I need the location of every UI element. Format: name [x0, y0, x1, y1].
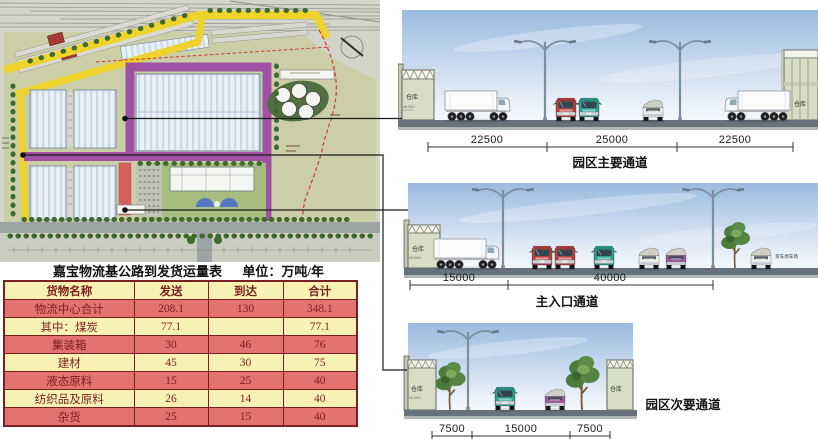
gate-tree [187, 236, 195, 244]
cargo-name-cell: 纺织品及原料 [4, 390, 134, 408]
section-caption: 园区次要通道 [645, 397, 721, 412]
column-header: 到达 [208, 281, 283, 300]
value-cell: 30 [134, 336, 208, 354]
dimension-value: 25000 [596, 134, 629, 146]
sky [408, 323, 633, 410]
value-cell: 25 [208, 372, 283, 390]
table-row: 物流中心合计208.1130348.1 [4, 300, 357, 318]
site-plan-map [0, 0, 380, 262]
roadbed [404, 410, 637, 416]
value-cell: 14 [208, 390, 283, 408]
value-cell: 30 [208, 354, 283, 372]
warehouse-right: 仓库 [607, 360, 633, 410]
dimension-value: 22500 [471, 134, 504, 146]
value-cell: 77.1 [283, 318, 357, 336]
gate-building [117, 205, 145, 214]
cargo-name-cell: 建材 [4, 354, 134, 372]
planning-sheet: 嘉宝物流基公路到发货运量表 单位：万吨/年 货物名称发送到达合计 物流中心合计2… [0, 0, 818, 439]
table-row: 纺织品及原料261440 [4, 390, 357, 408]
roadbed-edge [398, 127, 818, 130]
value-cell: 40 [283, 372, 357, 390]
column-header: 货物名称 [4, 281, 134, 300]
freight-table-body: 物流中心合计208.1130348.1其中：煤炭77.177.1集装箱30467… [4, 300, 357, 427]
value-cell: 45 [134, 354, 208, 372]
dimension-value: 7500 [577, 423, 603, 435]
value-cell: 348.1 [283, 300, 357, 318]
warehouse-left: 仓库 ±0.000 [404, 356, 436, 410]
value-cell: 46 [208, 336, 283, 354]
freight-table-titlebar: 嘉宝物流基公路到发货运量表 单位：万吨/年 [3, 260, 356, 280]
warehouse-label: 仓库 [794, 100, 806, 108]
value-cell: 76 [283, 336, 357, 354]
warehouse-label: 仓库 [406, 93, 418, 101]
cargo-name-cell: 杂货 [4, 408, 134, 427]
parking-lot-label: 货车停车场 [775, 253, 798, 260]
column-header: 发送 [134, 281, 208, 300]
admin-zone [117, 163, 266, 221]
freight-table-title: 嘉宝物流基公路到发货运量表 [53, 261, 222, 280]
value-cell: 77.1 [134, 318, 208, 336]
cargo-name-cell: 液态原料 [4, 372, 134, 390]
cargo-name-cell: 物流中心合计 [4, 300, 134, 318]
table-row: 建材453075 [4, 354, 357, 372]
table-row: 其中：煤炭77.177.1 [4, 318, 357, 336]
freight-table: 嘉宝物流基公路到发货运量表 单位：万吨/年 货物名称发送到达合计 物流中心合计2… [3, 260, 356, 427]
dimension-value: 15000 [443, 272, 476, 284]
warehouse-label: 仓库 [411, 385, 423, 393]
value-cell: 25 [134, 408, 208, 427]
freight-table-unit: 单位：万吨/年 [242, 261, 324, 280]
roadbed-edge [404, 416, 637, 419]
value-cell: 15 [134, 372, 208, 390]
cargo-name-cell: 其中：煤炭 [4, 318, 134, 336]
freight-volume-table: 货物名称发送到达合计 物流中心合计208.1130348.1其中：煤炭77.17… [3, 280, 358, 427]
cross-section-secondary-channel: 仓库 ±0.000 仓库 园区次要通道 7500 15000 7500 [398, 318, 738, 439]
value-cell: 75 [283, 354, 357, 372]
value-cell: 40 [283, 390, 357, 408]
level-label: ±0.000 [409, 396, 421, 400]
admin-building [170, 167, 254, 191]
value-cell: 15 [208, 408, 283, 427]
dimension-value: 7500 [439, 423, 465, 435]
south-road [0, 222, 380, 233]
section-caption: 园区主要通道 [572, 155, 648, 170]
table-row: 集装箱304676 [4, 336, 357, 354]
table-header-row: 货物名称发送到达合计 [4, 281, 357, 300]
value-cell: 130 [208, 300, 283, 318]
value-cell [208, 318, 283, 336]
dimension-value: 15000 [505, 423, 538, 435]
section-caption: 主入口通道 [536, 294, 599, 309]
level-label: ±0.000 [403, 105, 415, 109]
central-warehouse [136, 74, 260, 151]
dimension-value: 40000 [594, 272, 627, 284]
cargo-name-cell: 集装箱 [4, 336, 134, 354]
gate-tree [214, 236, 222, 244]
warehouse-label: 仓库 [412, 245, 424, 253]
warehouse-left: 仓库 ±0.000 [398, 64, 434, 120]
cross-section-main-entrance: 仓库 ±0.000 货车停车场 15000 40000 主入口通道 [398, 178, 818, 313]
column-header: 合计 [283, 281, 357, 300]
tank-office [280, 70, 334, 79]
dimension-value: 22500 [719, 134, 752, 146]
value-cell: 40 [283, 408, 357, 427]
level-label: ±0.000 [409, 256, 421, 260]
warehouse-label: 仓库 [610, 385, 622, 393]
value-cell: 26 [134, 390, 208, 408]
cross-section-main-channel: 仓库 ±0.000 仓库 22500 25000 [398, 6, 818, 174]
table-row: 液态原料152540 [4, 372, 357, 390]
value-cell: 208.1 [134, 300, 208, 318]
table-row: 杂货251540 [4, 408, 357, 427]
